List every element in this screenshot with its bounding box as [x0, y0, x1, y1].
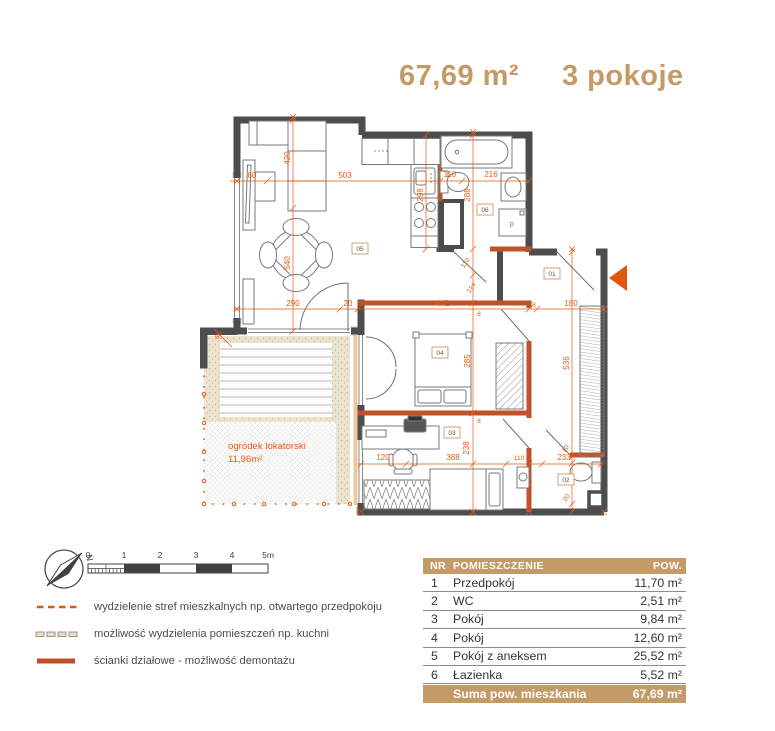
room-label-02: 02: [562, 477, 570, 484]
solid-line-swatch: [35, 656, 81, 666]
dim-label: 536: [562, 356, 571, 370]
dim-label: 124: [466, 281, 478, 294]
scale-tick: 1: [122, 550, 127, 560]
cell-area: 11,70 m²: [604, 576, 686, 590]
cell-name: Pokój: [453, 612, 604, 626]
room-table: NR POMIESZCZENIE POW. 1 Przedpokój 11,70…: [423, 558, 686, 703]
legend-label: możliwość wydzielenia pomieszczeń np. ku…: [94, 628, 329, 640]
dim-label: 288: [463, 188, 472, 202]
room-label-06: 06: [481, 207, 489, 214]
scale-tick: 3: [194, 550, 199, 560]
cell-nr: 4: [423, 631, 453, 645]
dim-label: 298: [416, 188, 425, 202]
table-row: 5 Pokój z aneksem 25,52 m²: [423, 648, 686, 666]
dim-label: 442: [436, 299, 450, 308]
legend: wydzielenie stref mieszkalnych np. otwar…: [35, 593, 405, 674]
room-label-01: 01: [548, 271, 556, 278]
header-area: POW.: [604, 560, 686, 572]
chair: [283, 219, 309, 236]
dim-label: 290: [286, 299, 300, 308]
furniture-room3: [362, 416, 503, 510]
table-row: 3 Pokój 9,84 m²: [423, 611, 686, 629]
dim-label: 8: [477, 311, 481, 318]
dim-label: 110: [444, 170, 457, 179]
scale-tick: 0: [86, 550, 91, 560]
dim-label: 110: [514, 455, 525, 462]
chair: [260, 242, 277, 268]
table-row: 6 Łazienka 5,52 m²: [423, 666, 686, 684]
garden-label: ogródek lokatorski: [228, 441, 306, 452]
cell-area: 2,51 m²: [604, 594, 686, 608]
dim-label: 20: [562, 493, 572, 503]
hallway-wardrobe: [580, 306, 604, 456]
legend-row: wydzielenie stref mieszkalnych np. otwar…: [35, 593, 405, 620]
cell-area: 5,52 m²: [604, 668, 686, 682]
office-chair: [392, 449, 414, 471]
legend-row: ścianki działowe - możliwość demontażu: [35, 647, 405, 674]
table-footer: Suma pow. mieszkania 67,69 m²: [423, 685, 686, 703]
legend-label: wydzielenie stref mieszkalnych np. otwar…: [94, 601, 382, 613]
terrace-door: [300, 283, 348, 331]
room-label-03: 03: [448, 430, 456, 437]
terrace-garden: ogródek lokatorski 11,96m²: [202, 334, 352, 506]
dim-label: 216: [484, 170, 498, 179]
scale-bar: 0 1 2 3 4 5m: [86, 550, 274, 573]
chair: [283, 275, 309, 292]
scale-tick: 4: [230, 550, 235, 560]
bathroom-door-leaf: [454, 252, 486, 282]
cell-name: Przedpokój: [453, 576, 604, 590]
entrance-arrow-icon: [609, 265, 627, 291]
legend-label: ścianki działowe - możliwość demontażu: [94, 655, 295, 667]
footer-label: Suma pow. mieszkania: [453, 687, 604, 701]
bedroom-door-leaf: [501, 309, 529, 341]
bedroom-french-doors: [366, 337, 396, 399]
cell-nr: 6: [423, 668, 453, 682]
dim-label: 180: [564, 299, 578, 308]
scale-tick: 2: [158, 550, 163, 560]
cell-nr: 5: [423, 649, 453, 663]
dim-label: 238: [462, 441, 471, 455]
table-row: 2 WC 2,51 m²: [423, 592, 686, 610]
outlined-dash-swatch: [35, 629, 81, 639]
scale-tick: 5m: [262, 550, 274, 560]
room-label-04: 04: [436, 350, 444, 357]
kitchen-counter: [362, 139, 440, 165]
room-label-05: 05: [356, 246, 364, 253]
page-title-area: 67,69 m²: [399, 60, 519, 93]
utility-shaft: [442, 201, 462, 247]
header-nr: NR: [423, 560, 453, 572]
utility-shaft: [589, 492, 603, 507]
dim-label: 503: [338, 171, 352, 180]
cell-area: 9,84 m²: [604, 612, 686, 626]
room3-wardrobe: [364, 480, 437, 509]
table-header: NR POMIESZCZENIE POW.: [423, 558, 686, 574]
cell-nr: 3: [423, 612, 453, 626]
page-title-rooms: 3 pokoje: [562, 60, 684, 93]
dim-label: 120: [376, 453, 390, 462]
shelf: [243, 279, 254, 324]
dashed-line-swatch: [35, 602, 81, 612]
garden-area-label: 11,96m²: [228, 454, 263, 465]
dim-label: 540: [283, 256, 292, 270]
dim-label: 80: [248, 171, 257, 180]
dim-label: 8: [532, 302, 536, 309]
pillow: [489, 473, 500, 506]
cell-nr: 2: [423, 594, 453, 608]
floorplan-drawing: ogródek lokatorski 11,96m²: [190, 103, 650, 548]
furniture-bedroom: [413, 332, 523, 409]
footer-value: 67,69 m²: [604, 687, 686, 701]
table-row: 1 Przedpokój 11,70 m²: [423, 574, 686, 592]
cell-area: 25,52 m²: [604, 649, 686, 663]
legend-row: możliwość wydzielenia pomieszczeń np. ku…: [35, 620, 405, 647]
dim-label: 285: [463, 354, 472, 368]
dim-label: 420: [283, 151, 292, 165]
header-name: POMIESZCZENIE: [453, 560, 604, 572]
chair: [316, 242, 333, 268]
floorplan-page: 67,69 m² 3 pokoje: [0, 0, 775, 731]
bedroom-wardrobe: [496, 343, 523, 409]
dim-label: 233: [557, 453, 571, 462]
cell-name: Pokój z aneksem: [453, 649, 604, 663]
dim-label: 388: [446, 453, 460, 462]
furniture-kitchen: [362, 139, 440, 248]
cell-area: 12,60 m²: [604, 631, 686, 645]
compass-and-scalebar: N 0 1 2 3 4 5m: [30, 542, 280, 597]
cell-name: Łazienka: [453, 668, 604, 682]
room3-door-leaf: [503, 419, 529, 448]
pillow: [444, 390, 466, 403]
washer-label: p: [510, 221, 514, 228]
entrance-door-leaf: [557, 252, 594, 290]
cell-name: WC: [453, 594, 604, 608]
dim-label: 8: [477, 418, 481, 425]
table-row: 4 Pokój 12,60 m²: [423, 629, 686, 647]
pillow: [418, 390, 441, 403]
cell-name: Pokój: [453, 631, 604, 645]
cell-nr: 1: [423, 576, 453, 590]
dim-label: 20: [344, 299, 353, 308]
